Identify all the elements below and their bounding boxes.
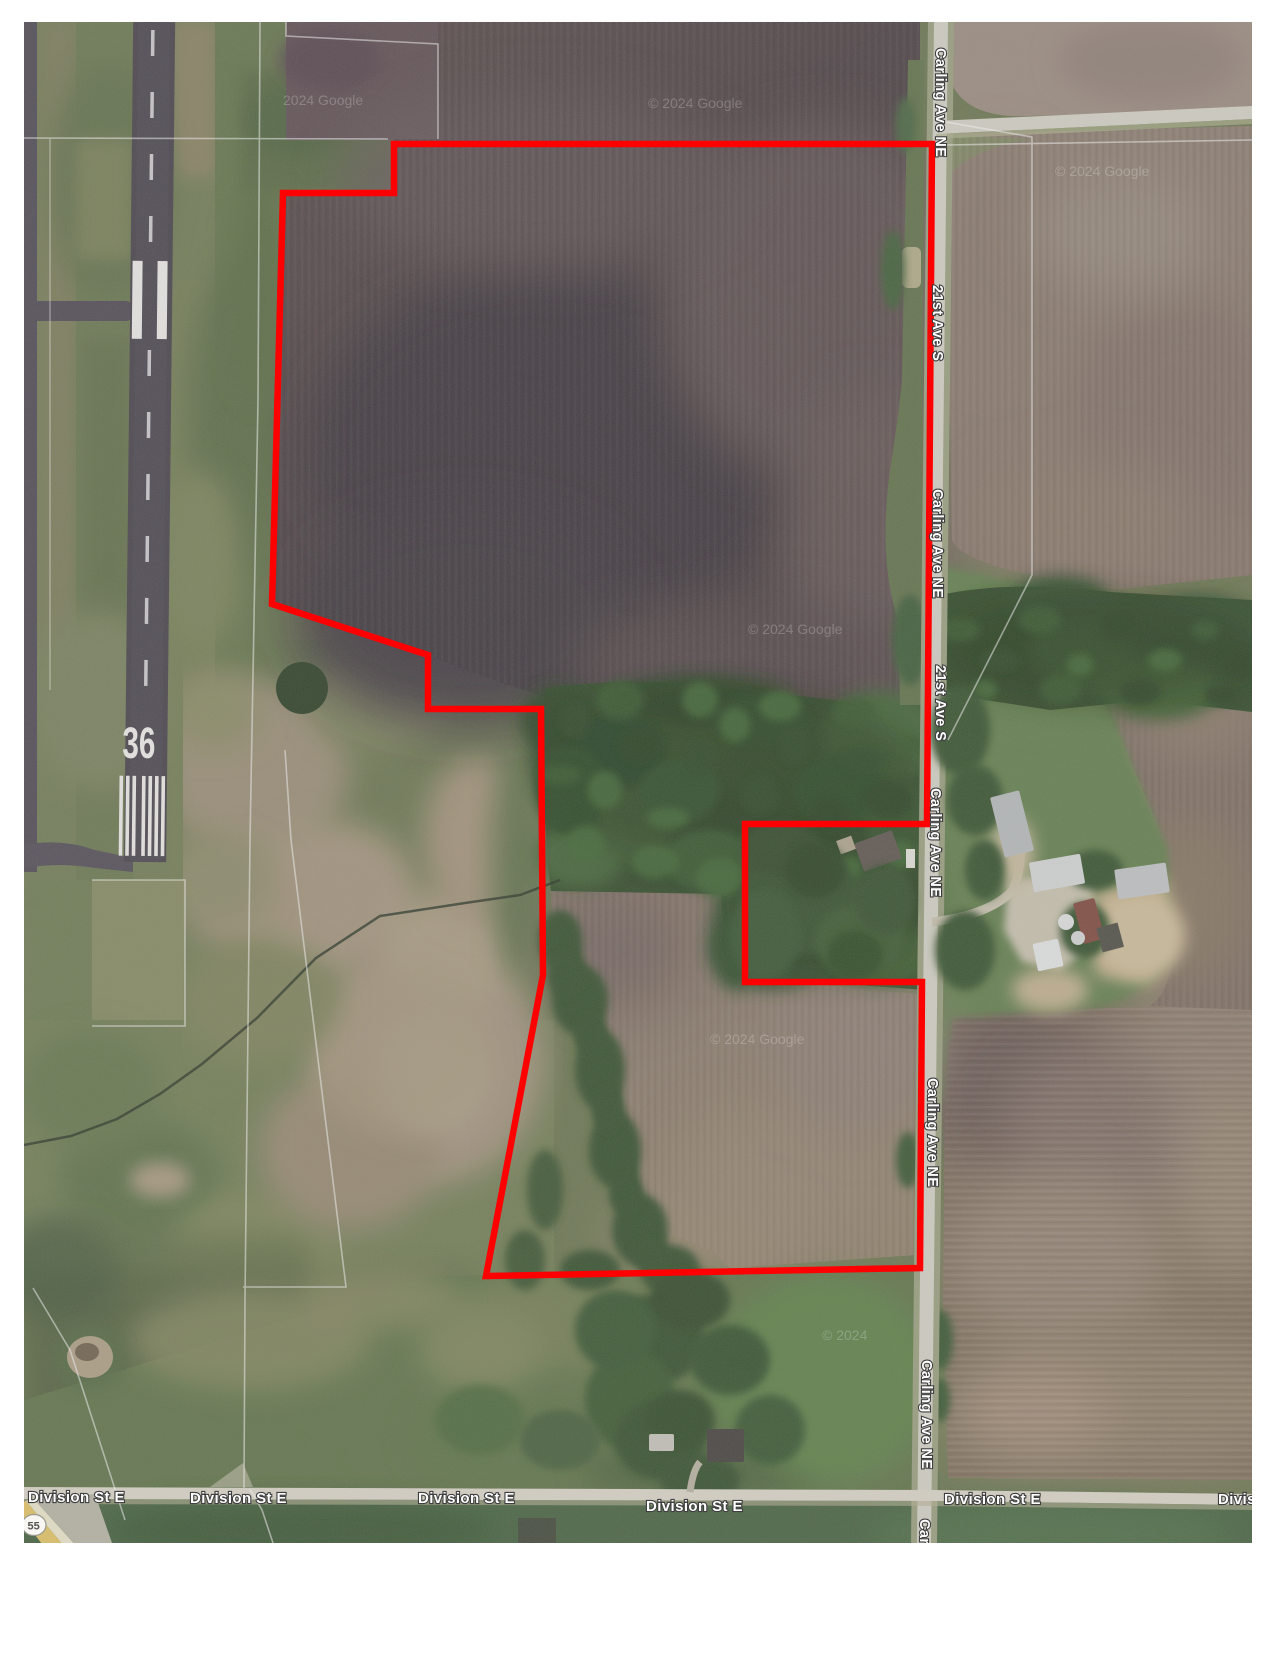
svg-text:Division St E: Division St E (28, 1489, 125, 1506)
svg-text:© 2024 Google: © 2024 Google (648, 95, 743, 111)
svg-text:Carling Ave NE: Carling Ave NE (918, 1360, 934, 1469)
svg-text:© 2024 Google: © 2024 Google (748, 621, 843, 637)
svg-text:21st Ave S: 21st Ave S (929, 285, 945, 361)
svg-text:Division St E: Division St E (418, 1490, 515, 1507)
svg-text:© 2024 Google: © 2024 Google (710, 1031, 805, 1047)
svg-text:Carling Ave NE: Carling Ave NE (932, 48, 948, 157)
svg-text:2024 Google: 2024 Google (283, 92, 363, 108)
svg-text:© 2024: © 2024 (822, 1327, 868, 1343)
svg-text:Divis: Divis (1218, 1491, 1256, 1508)
svg-text:Division St E: Division St E (646, 1498, 743, 1515)
svg-text:Carling Ave NE: Carling Ave NE (929, 489, 945, 598)
svg-text:21st Ave S: 21st Ave S (932, 665, 948, 741)
svg-text:Division St E: Division St E (190, 1490, 287, 1507)
svg-text:55: 55 (28, 1521, 40, 1533)
svg-text:Division St E: Division St E (944, 1491, 1041, 1508)
svg-text:Carling Ave NE: Carling Ave NE (924, 1078, 940, 1187)
svg-text:Carling Ave NE: Carling Ave NE (927, 788, 943, 897)
svg-text:© 2024 Google: © 2024 Google (1055, 163, 1150, 179)
